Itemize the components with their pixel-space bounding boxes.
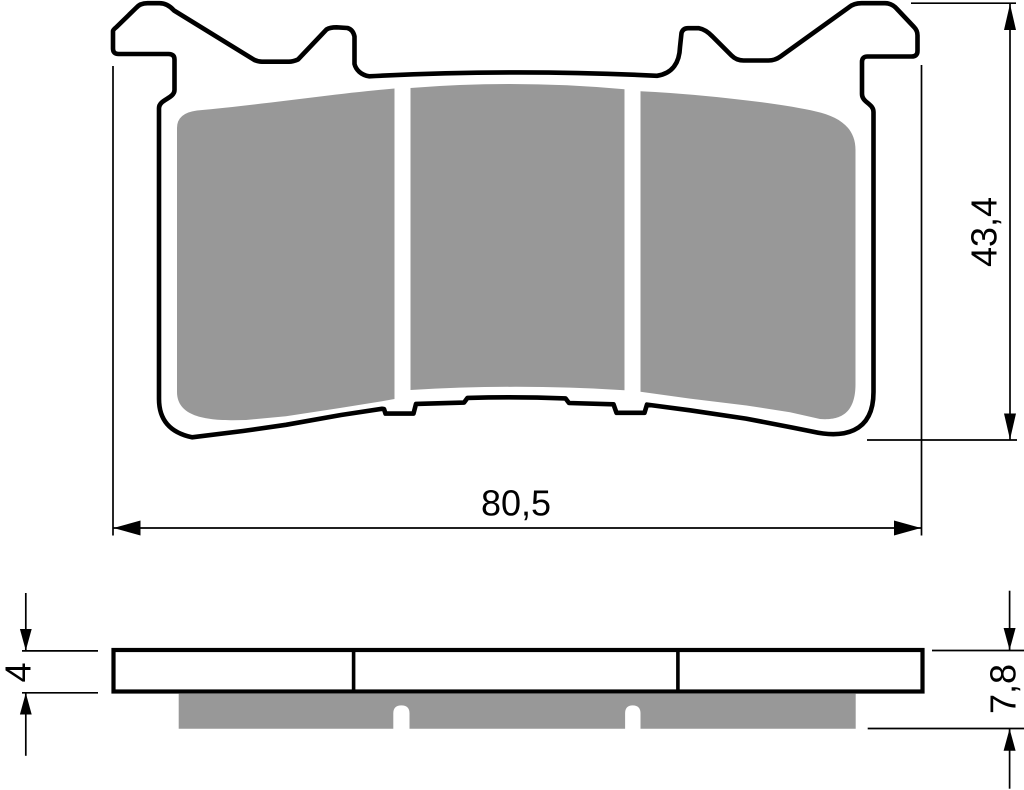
svg-text:43,4: 43,4 <box>964 197 1005 267</box>
svg-text:7,8: 7,8 <box>983 664 1024 714</box>
svg-text:80,5: 80,5 <box>481 483 551 524</box>
svg-text:4: 4 <box>0 662 39 682</box>
